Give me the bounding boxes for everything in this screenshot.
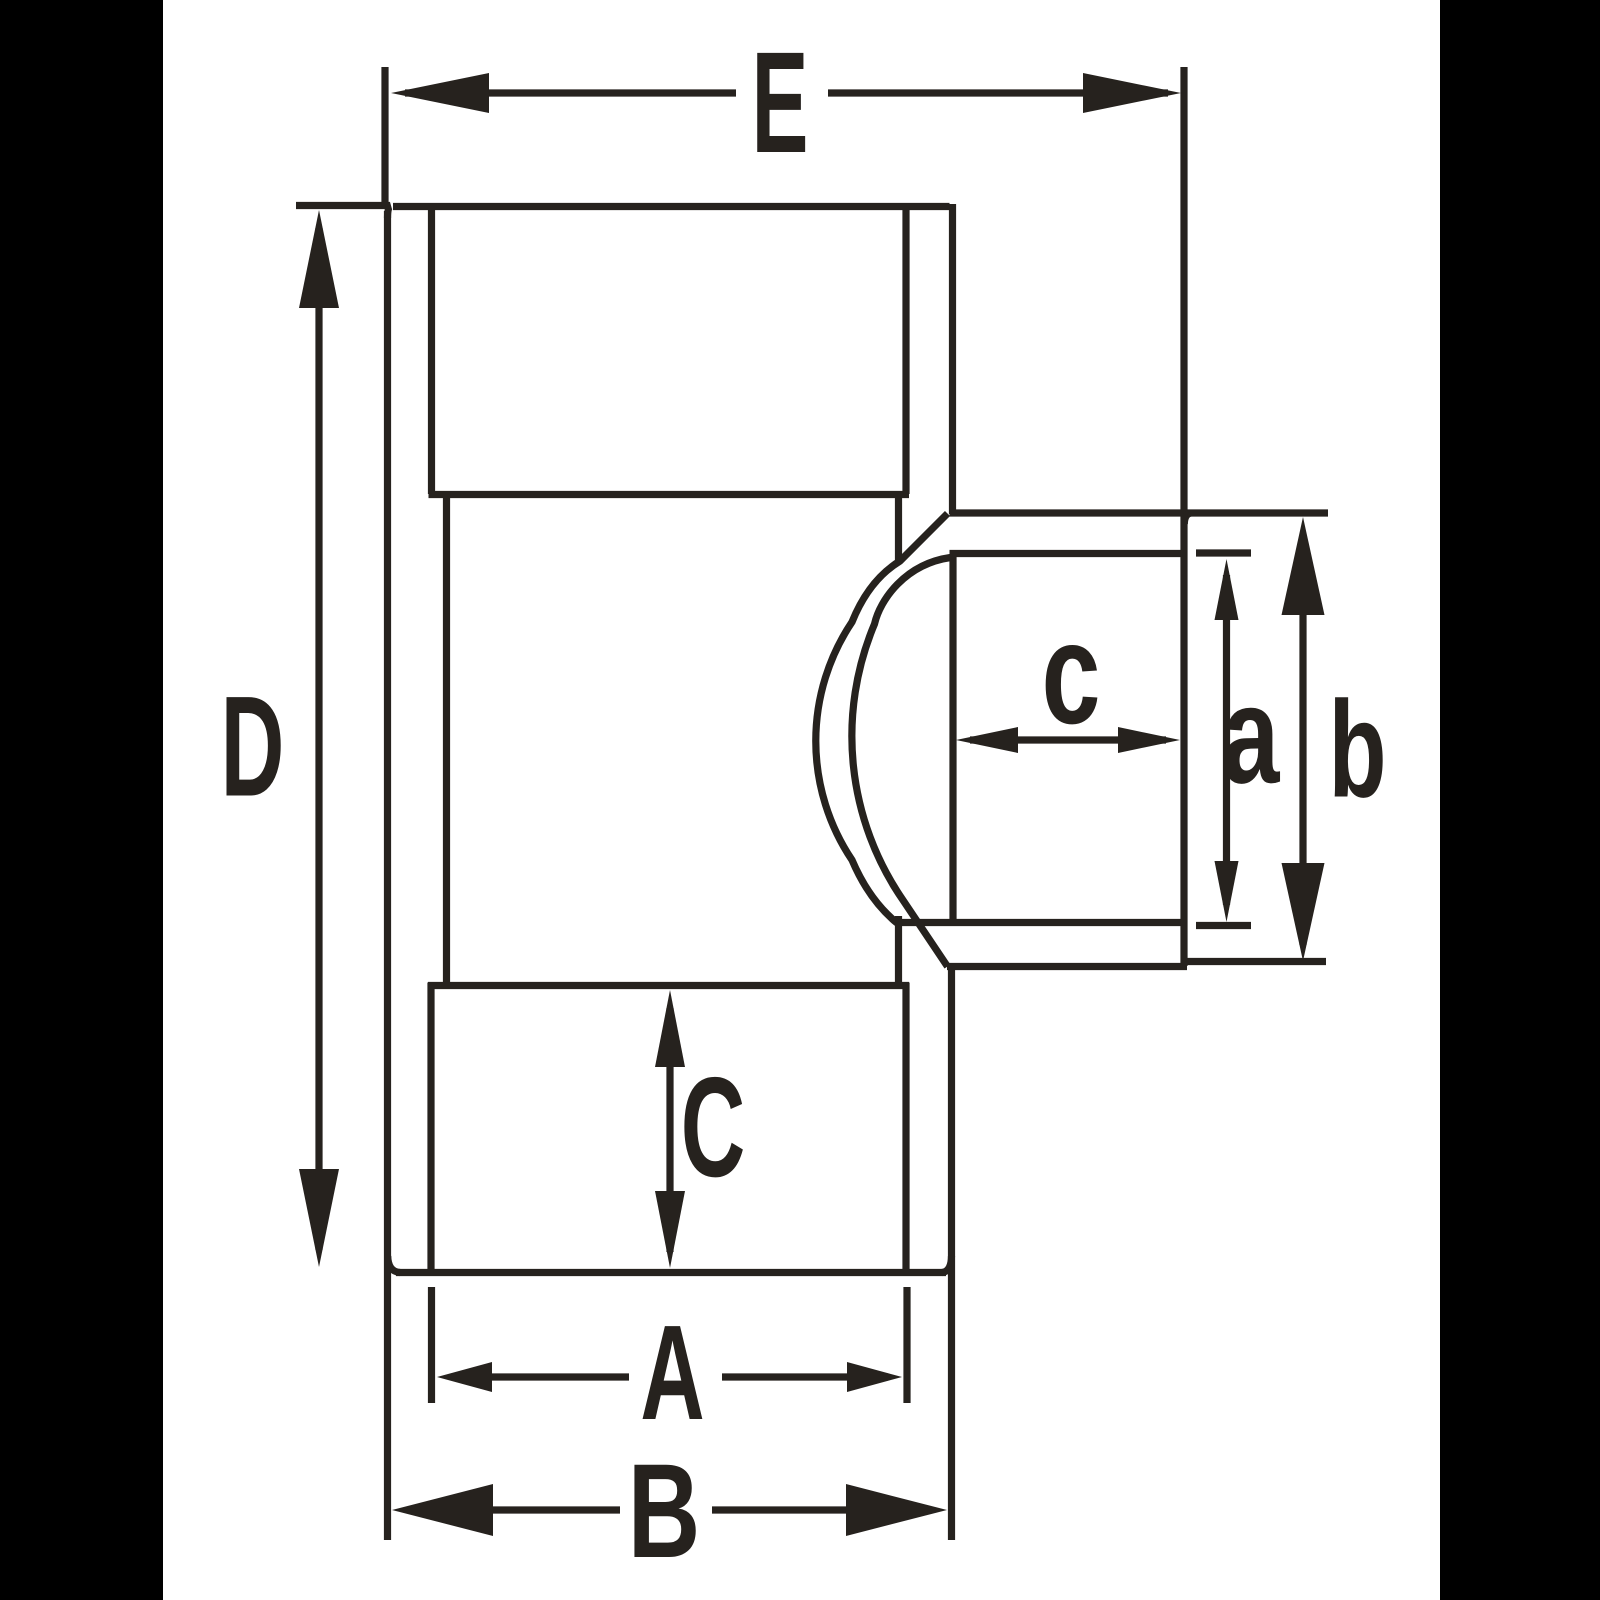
svg-text:E: E — [752, 23, 809, 184]
svg-text:b: b — [1328, 672, 1386, 825]
svg-text:A: A — [640, 1297, 704, 1448]
svg-text:C: C — [681, 1049, 746, 1207]
svg-text:c: c — [1042, 592, 1101, 754]
svg-text:D: D — [221, 667, 285, 827]
svg-text:B: B — [628, 1437, 701, 1586]
svg-text:a: a — [1222, 657, 1280, 812]
